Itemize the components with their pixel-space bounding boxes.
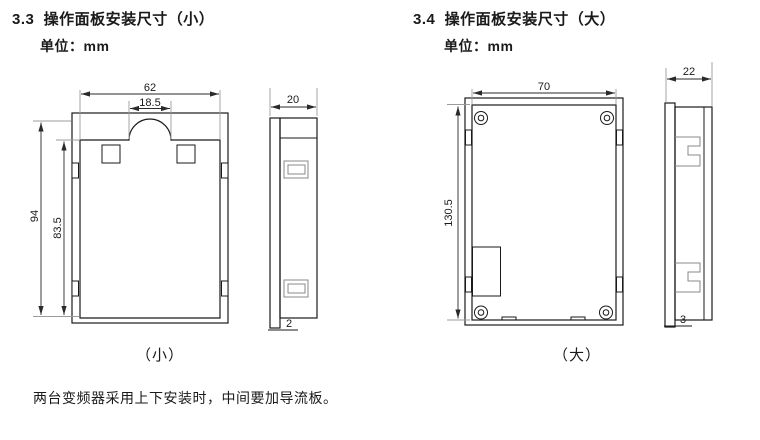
small-notch-dim-label: 18.5 [139,97,160,109]
large-bottom-notch [571,317,585,320]
screw-hole-center [604,115,610,121]
small-clip-hole-left [102,145,120,163]
small-depth-dim-label: 20 [287,94,299,106]
large-flange-dim-label: 3 [680,314,686,326]
caption-large: （大） [497,344,657,365]
small-panel-side-view: 20 2 [268,88,317,330]
small-edge-clip [222,281,229,296]
large-height-dim-label: 130.5 [443,199,455,227]
technical-drawing-canvas: 62 18.5 94 83.5 20 2 [0,0,760,440]
small-side-clip-inner [288,284,305,293]
large-panel-front-view [465,98,623,325]
manual-page: 3.3 操作面板安装尺寸（小） 单位：mm 3.4 操作面板安装尺寸（大） 单位… [0,0,760,440]
large-edge-clip [466,277,472,292]
small-flange-dim-label: 2 [286,318,292,330]
screw-hole-center [478,115,484,121]
large-inner-panel [472,105,616,320]
large-connector-cutout [473,247,501,296]
large-edge-clip [617,130,623,145]
small-edge-clip [72,163,79,178]
small-window-height-dim-label: 83.5 [52,217,64,238]
large-edge-clip [466,130,472,145]
large-depth-dim-label: 22 [683,66,695,78]
large-side-hook-clip [675,263,700,292]
screw-hole [600,306,613,319]
screw-hole [601,112,614,125]
large-width-dim-label: 70 [538,81,550,93]
small-mounting-window [80,119,220,318]
small-panel-dimensions: 62 18.5 94 83.5 [29,82,220,317]
small-width-dim-label: 62 [144,82,156,94]
large-outer-frame [465,98,623,325]
small-side-body [280,118,317,318]
small-side-flange [270,118,280,328]
small-side-clip-inner [288,165,305,174]
large-panel-side-view: 22 3 [664,62,712,327]
small-edge-clip [222,163,229,178]
installation-note: 两台变频器采用上下安装时，中间要加导流板。 [33,388,338,408]
large-side-body [675,107,712,320]
caption-small: （小） [80,344,240,365]
large-bottom-notch [502,317,516,320]
screw-hole-center [478,310,484,316]
screw-hole [475,306,488,319]
small-edge-clip [72,281,79,296]
large-edge-clip [617,277,623,292]
small-clip-hole-right [177,145,195,163]
small-height-dim-label: 94 [29,210,41,222]
large-side-hook-clip [675,137,700,166]
screw-hole-center [603,310,609,316]
small-outer-frame [72,113,228,323]
small-panel-front-view [72,113,228,323]
screw-hole [475,112,488,125]
large-side-flange [665,103,675,327]
